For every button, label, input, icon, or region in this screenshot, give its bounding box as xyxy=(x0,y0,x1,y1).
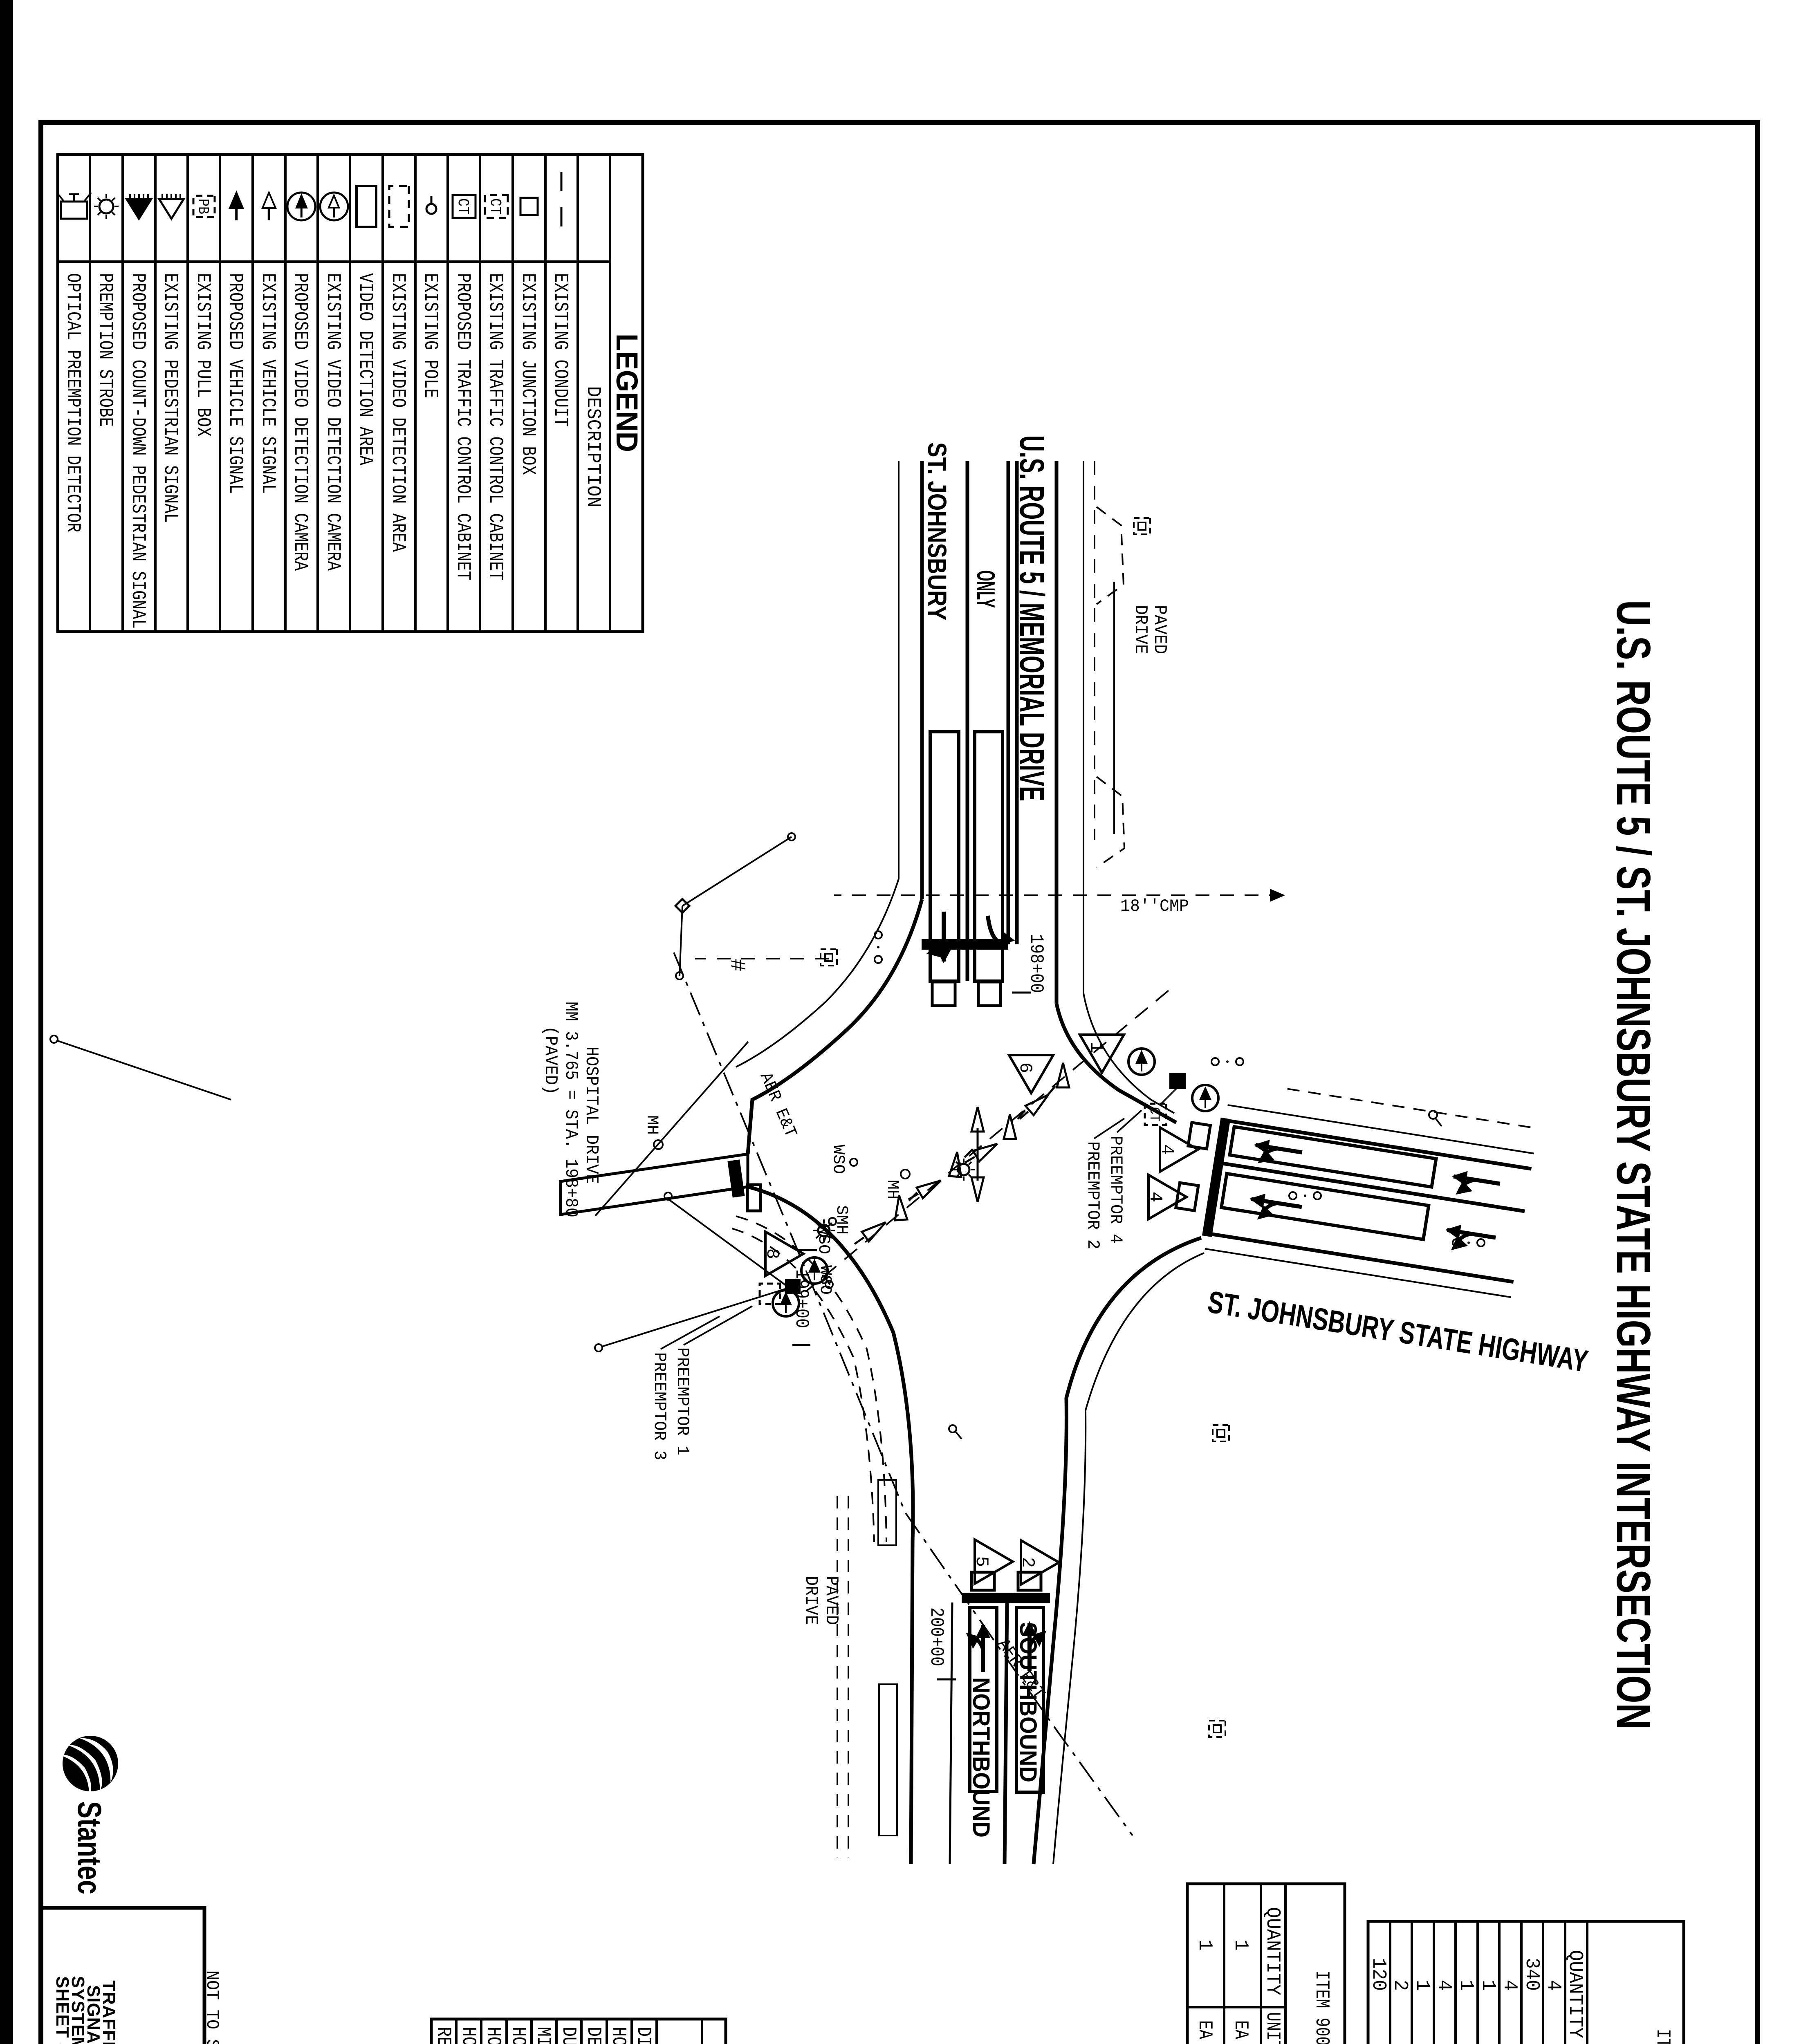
svg-text:CT: CT xyxy=(486,198,504,215)
svg-text:DURATION TIME: DURATION TIME xyxy=(557,2027,579,2044)
svg-text:DET. LOCK: DET. LOCK xyxy=(582,2027,604,2044)
svg-text:WSO: WSO xyxy=(816,1265,834,1295)
svg-text:PREMPTION STROBE: PREMPTION STROBE xyxy=(94,273,116,427)
svg-text:VIDEO DETECTION AREA: VIDEO DETECTION AREA xyxy=(354,273,376,465)
svg-text:ITEM 900.620 SPECIAL PROVISION: ITEM 900.620 SPECIAL PROVISION (VEHICLE … xyxy=(1651,2029,1673,2044)
svg-text:U.S. ROUTE 5 / MEMORIAL DRIVE: U.S. ROUTE 5 / MEMORIAL DRIVE xyxy=(1013,435,1051,801)
svg-text:4: 4 xyxy=(1542,1980,1564,1991)
svg-text:1: 1 xyxy=(1193,1940,1216,1951)
svg-text:1: 1 xyxy=(1455,1980,1477,1991)
svg-text:CT: CT xyxy=(1146,1107,1162,1122)
svg-text:U.S. ROUTE 5 / ST. JOHNSBURY S: U.S. ROUTE 5 / ST. JOHNSBURY STATE HIGHW… xyxy=(1607,600,1660,1729)
svg-text:HOLD RED: HOLD RED xyxy=(457,2027,479,2044)
svg-text:1: 1 xyxy=(1229,1940,1252,1951)
svg-text:DRIVE: DRIVE xyxy=(1130,605,1151,654)
svg-text:EA: EA xyxy=(1229,2020,1252,2039)
svg-text:340: 340 xyxy=(1521,1958,1543,1991)
svg-text:CT: CT xyxy=(454,198,471,215)
svg-text:EXISTING JUNCTION BOX: EXISTING JUNCTION BOX xyxy=(517,273,539,475)
svg-text:DRIVE: DRIVE xyxy=(801,1576,821,1625)
svg-text:(PAVED): (PAVED) xyxy=(540,1026,561,1095)
svg-text:PREEMPTOR 3: PREEMPTOR 3 xyxy=(650,1352,669,1460)
svg-text:4: 4 xyxy=(1498,1980,1521,1991)
svg-text:2: 2 xyxy=(1017,1557,1038,1568)
svg-text:LEGEND: LEGEND xyxy=(610,334,644,452)
svg-text:DIRECTION: DIRECTION xyxy=(632,2027,654,2044)
svg-text:198+00: 198+00 xyxy=(1025,934,1047,993)
svg-text:199+00: 199+00 xyxy=(791,1269,812,1328)
svg-text:MIN. GREEN: MIN. GREEN xyxy=(532,2027,554,2044)
svg-text:HOSPITAL DRIVE: HOSPITAL DRIVE xyxy=(581,1047,601,1184)
svg-text:PREEMPTOR 2: PREEMPTOR 2 xyxy=(1083,1141,1103,1249)
svg-text:#: # xyxy=(725,959,749,971)
svg-text:EXISTING PULL BOX: EXISTING PULL BOX xyxy=(192,273,214,437)
svg-text:HOLD GREEN: HOLD GREEN xyxy=(507,2027,529,2044)
svg-text:MH: MH xyxy=(642,1115,661,1135)
svg-text:HOLD PHASE: HOLD PHASE xyxy=(607,2027,629,2044)
svg-text:PREEMPTOR 4: PREEMPTOR 4 xyxy=(1106,1136,1126,1244)
svg-text:1: 1 xyxy=(1477,1980,1499,1991)
svg-text:UNIT: UNIT xyxy=(1261,2012,1283,2044)
svg-text:EXISTING PEDESTRIAN SIGNAL: EXISTING PEDESTRIAN SIGNAL xyxy=(159,273,181,523)
svg-text:EXISTING VIDEO DETECTION AREA: EXISTING VIDEO DETECTION AREA xyxy=(387,273,409,552)
svg-text:PB: PB xyxy=(195,199,211,214)
svg-text:200+00: 200+00 xyxy=(926,1607,947,1666)
svg-text:PROPOSED COUNT-DOWN PEDESTRIAN: PROPOSED COUNT-DOWN PEDESTRIAN SIGNAL xyxy=(127,273,149,629)
svg-text:ST. JOHNSBURY: ST. JOHNSBURY xyxy=(922,442,952,621)
svg-text:EXISTING VIDEO DETECTION CAMER: EXISTING VIDEO DETECTION CAMERA xyxy=(322,273,344,571)
svg-text:QUANTITY: QUANTITY xyxy=(1564,1950,1586,2038)
svg-text:PREEMPTOR 1: PREEMPTOR 1 xyxy=(673,1347,692,1455)
svg-text:RELEASE PHASE: RELEASE PHASE xyxy=(432,2027,454,2044)
svg-text:PAVED: PAVED xyxy=(821,1576,841,1625)
svg-text:4: 4 xyxy=(1433,1980,1455,1991)
svg-text:5: 5 xyxy=(971,1556,991,1567)
svg-text:PROPOSED VEHICLE SIGNAL: PROPOSED VEHICLE SIGNAL xyxy=(224,273,246,494)
svg-text:4: 4 xyxy=(1145,1192,1165,1202)
svg-text:MM 3.765 = STA. 198+80: MM 3.765 = STA. 198+80 xyxy=(561,1002,581,1217)
svg-text:DESCRIPTION: DESCRIPTION xyxy=(582,386,604,508)
svg-text:SHEET #1: SHEET #1 xyxy=(52,1976,72,2044)
svg-text:EXISTING CONDUIT: EXISTING CONDUIT xyxy=(549,273,571,427)
svg-text:EXISTING POLE: EXISTING POLE xyxy=(419,273,441,398)
svg-text:OPTICAL PREEMPTION DETECTOR: OPTICAL PREEMPTION DETECTOR xyxy=(62,273,84,532)
svg-text:120: 120 xyxy=(1367,1958,1389,1991)
svg-text:4: 4 xyxy=(1156,1144,1177,1155)
svg-text:EA: EA xyxy=(1193,2020,1216,2039)
svg-text:ONLY: ONLY xyxy=(971,570,1000,608)
svg-text:2: 2 xyxy=(1389,1980,1411,1991)
svg-text:PROPOSED VIDEO DETECTION CAMER: PROPOSED VIDEO DETECTION CAMERA xyxy=(289,273,311,571)
svg-text:Stantec: Stantec xyxy=(71,1801,108,1894)
svg-text:ITEM 900.620 SPECIAL PROVISION: ITEM 900.620 SPECIAL PROVISION (REMOVE A… xyxy=(1310,1971,1332,2044)
svg-text:18''CMP: 18''CMP xyxy=(1120,896,1189,916)
svg-text:EXISTING TRAFFIC CONTROL CABIN: EXISTING TRAFFIC CONTROL CABINET xyxy=(484,273,506,580)
svg-text:NORTHBOUND: NORTHBOUND xyxy=(968,1677,994,1838)
svg-text:PAVED: PAVED xyxy=(1149,605,1170,654)
svg-text:QUANTITY: QUANTITY xyxy=(1261,1907,1283,1995)
svg-text:EXISTING VEHICLE SIGNAL: EXISTING VEHICLE SIGNAL xyxy=(257,273,279,494)
svg-text:6: 6 xyxy=(1015,1062,1035,1073)
svg-text:1: 1 xyxy=(1411,1980,1433,1991)
svg-text:WSO: WSO xyxy=(829,1145,847,1174)
svg-text:HOLD YELLOW: HOLD YELLOW xyxy=(482,2027,504,2044)
svg-text:PROPOSED TRAFFIC CONTROL CABIN: PROPOSED TRAFFIC CONTROL CABINET xyxy=(452,273,474,580)
svg-text:8: 8 xyxy=(762,1248,782,1259)
